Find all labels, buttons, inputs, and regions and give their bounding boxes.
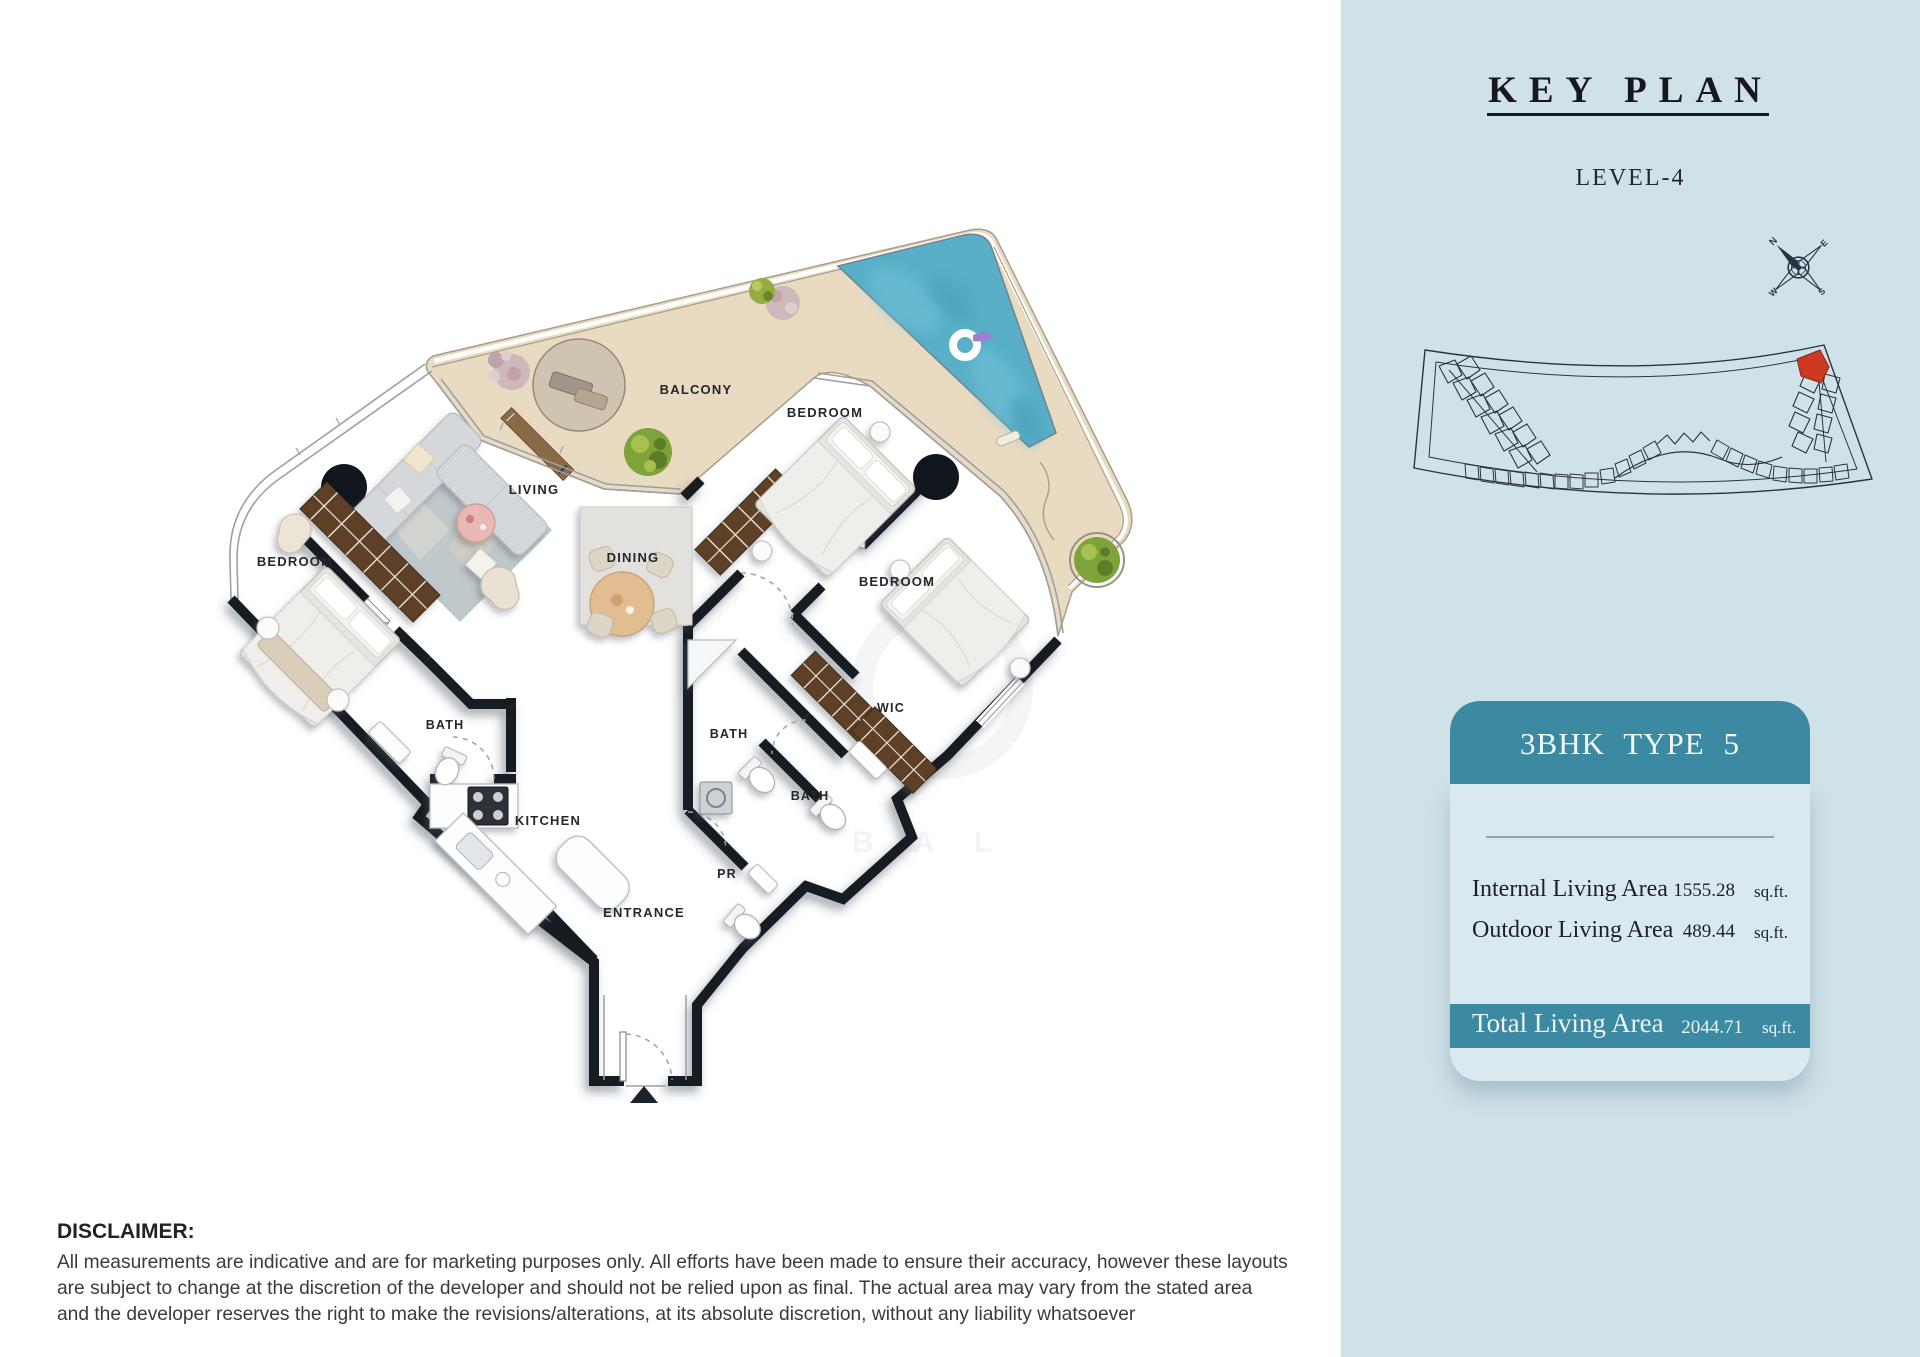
svg-text:BALCONY: BALCONY [660, 382, 733, 397]
svg-text:KITCHEN: KITCHEN [515, 813, 581, 828]
svg-text:DINING: DINING [607, 550, 660, 565]
svg-text:WIC: WIC [877, 701, 905, 715]
svg-text:BEDROOM: BEDROOM [787, 405, 863, 420]
svg-text:BEDROOM: BEDROOM [859, 574, 935, 589]
svg-text:ENTRANCE: ENTRANCE [603, 905, 685, 920]
svg-text:LIVING: LIVING [509, 482, 560, 497]
svg-text:B A L: B A L [852, 826, 1008, 859]
svg-text:BATH: BATH [791, 789, 830, 803]
svg-text:BATH: BATH [426, 718, 465, 732]
svg-text:BATH: BATH [710, 727, 749, 741]
svg-text:S: S [1816, 286, 1827, 297]
svg-text:BEDROOM: BEDROOM [257, 554, 333, 569]
svg-text:PR: PR [717, 867, 737, 881]
